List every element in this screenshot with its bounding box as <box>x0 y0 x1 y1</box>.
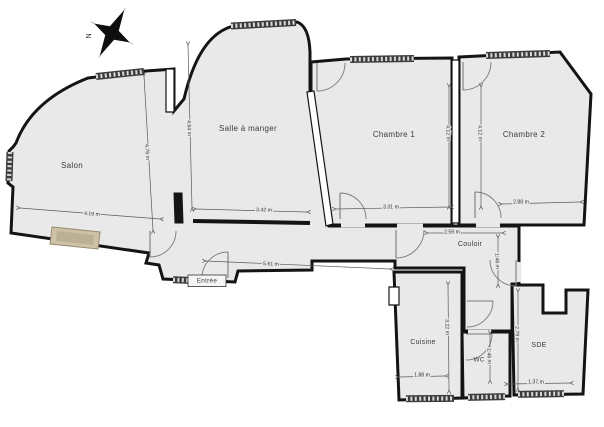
window-dining-top <box>231 23 296 27</box>
room-label-cuisine: Cuisine <box>410 339 435 346</box>
window-salon-top <box>96 72 144 77</box>
dimension-label: 4.76 m <box>143 144 150 160</box>
window-sde-bottom <box>518 394 564 395</box>
floor-plan-page: N 4.19 m4.76 m4.64 m3.42 m4.12 m3.31 m4.… <box>0 0 604 427</box>
dimension-label: 3.22 m <box>443 319 449 335</box>
dimension-label: 5.61 m <box>263 261 279 268</box>
room-label-entree: Entrée <box>197 278 218 285</box>
wall-stub-entree <box>174 193 183 223</box>
dimension-label: 3.31 m <box>383 204 399 210</box>
dimension-label: 4.64 m <box>185 120 191 136</box>
window-salon-left <box>9 152 10 181</box>
compass-north-icon: N <box>78 0 147 69</box>
room-label-salle-a-manger: Salle à manger <box>219 124 277 133</box>
wall-chambre1-chambre2 <box>452 60 459 223</box>
room-label-sde: SDE <box>531 342 546 349</box>
room-label-chambre-2: Chambre 2 <box>503 130 546 139</box>
window-wc-bottom <box>468 397 505 398</box>
room-sde-shape <box>512 285 588 395</box>
room-label-couloir: Couloir <box>458 241 483 248</box>
room-label-wc: WC <box>473 357 484 364</box>
dimension-label: 1.46 m <box>493 253 500 269</box>
dimension-label: 4.12 m <box>476 125 482 141</box>
window-chambre2-top <box>486 54 550 56</box>
floor-plan-drawing: N 4.19 m4.76 m4.64 m3.42 m4.12 m3.31 m4.… <box>0 0 604 427</box>
wall-notch-cuisine <box>389 287 399 305</box>
room-chambre-1-shape <box>311 58 452 225</box>
window-chambre1-top <box>350 59 414 60</box>
dimension-label: 2.79 m <box>513 326 520 342</box>
dimension-label: 1.37 m <box>528 379 544 385</box>
room-cuisine-shape <box>394 272 462 400</box>
dimension-label: 1.46 m <box>485 348 492 364</box>
dimension-label: 2.88 m <box>513 199 529 205</box>
dimension-label: 3.42 m <box>256 207 272 213</box>
wall-dining-south <box>193 221 310 223</box>
dimension-label: 1.88 m <box>414 372 430 378</box>
room-wc-shape <box>462 332 510 398</box>
room-label-salon: Salon <box>61 161 83 170</box>
room-label-chambre-1: Chambre 1 <box>373 130 416 139</box>
dimension-label: 2.59 m <box>444 229 460 235</box>
compass-north-label: N <box>86 33 93 38</box>
wall-niche-salon-dining <box>166 69 174 112</box>
dimension-label: 4.19 m <box>84 211 100 218</box>
dimension-label: 4.12 m <box>444 125 450 141</box>
